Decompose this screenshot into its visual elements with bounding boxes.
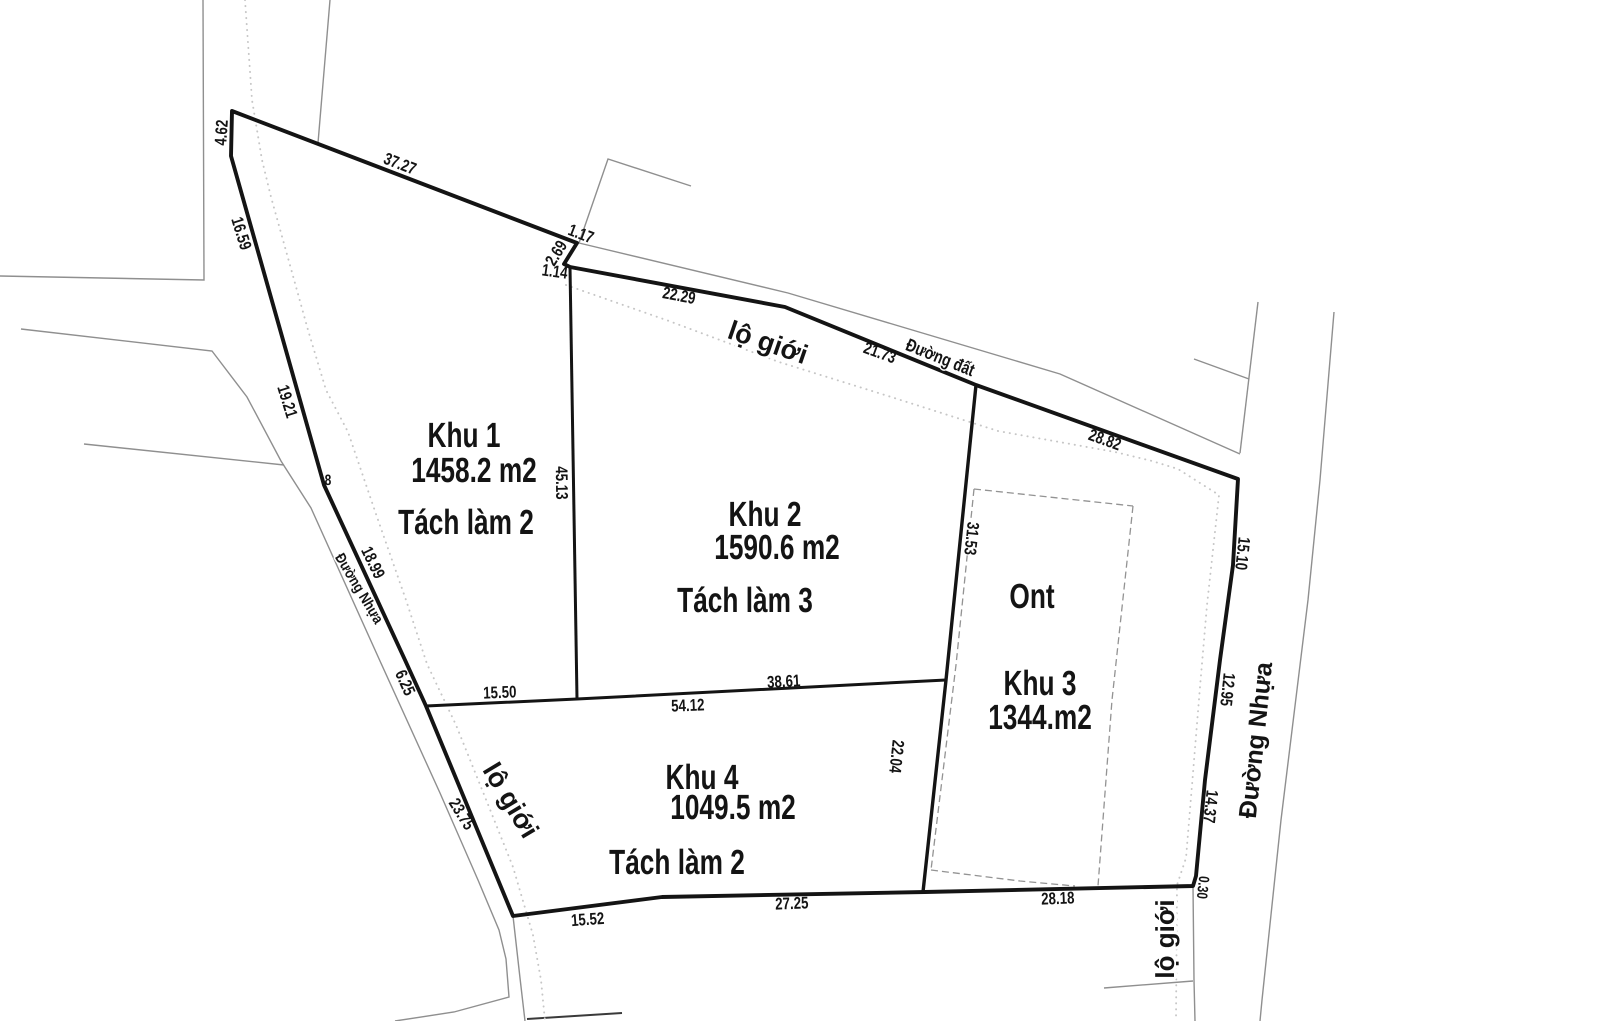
svg-text:Tách làm 3: Tách làm 3 xyxy=(677,581,813,620)
svg-text:4.62: 4.62 xyxy=(211,119,232,146)
svg-text:28.18: 28.18 xyxy=(1041,888,1075,908)
svg-text:Tách làm 2: Tách làm 2 xyxy=(609,843,745,882)
svg-text:45.13: 45.13 xyxy=(552,466,572,500)
svg-text:1.14: 1.14 xyxy=(541,260,570,282)
svg-text:31.53: 31.53 xyxy=(960,521,982,556)
svg-text:1590.6 m2: 1590.6 m2 xyxy=(714,528,840,567)
svg-text:1344.m2: 1344.m2 xyxy=(988,698,1092,737)
svg-text:15.52: 15.52 xyxy=(570,909,604,930)
svg-text:15.50: 15.50 xyxy=(483,682,517,702)
svg-text:Ont: Ont xyxy=(1009,577,1054,616)
svg-text:54.12: 54.12 xyxy=(671,695,705,715)
svg-text:1049.5 m2: 1049.5 m2 xyxy=(670,788,796,827)
svg-text:38.61: 38.61 xyxy=(767,671,801,692)
svg-text:8: 8 xyxy=(325,472,332,489)
svg-text:27.25: 27.25 xyxy=(775,893,809,913)
svg-text:0.30: 0.30 xyxy=(1193,875,1212,899)
svg-text:22.04: 22.04 xyxy=(885,739,907,774)
svg-text:1458.2 m2: 1458.2 m2 xyxy=(411,451,537,490)
svg-text:Tách làm 2: Tách làm 2 xyxy=(398,503,534,542)
svg-text:Khu 1: Khu 1 xyxy=(428,416,501,455)
svg-text:15.10: 15.10 xyxy=(1231,536,1253,571)
svg-text:14.37: 14.37 xyxy=(1199,789,1221,824)
svg-text:lộ giới: lộ giới xyxy=(1150,899,1180,978)
svg-text:12.95: 12.95 xyxy=(1216,672,1238,707)
